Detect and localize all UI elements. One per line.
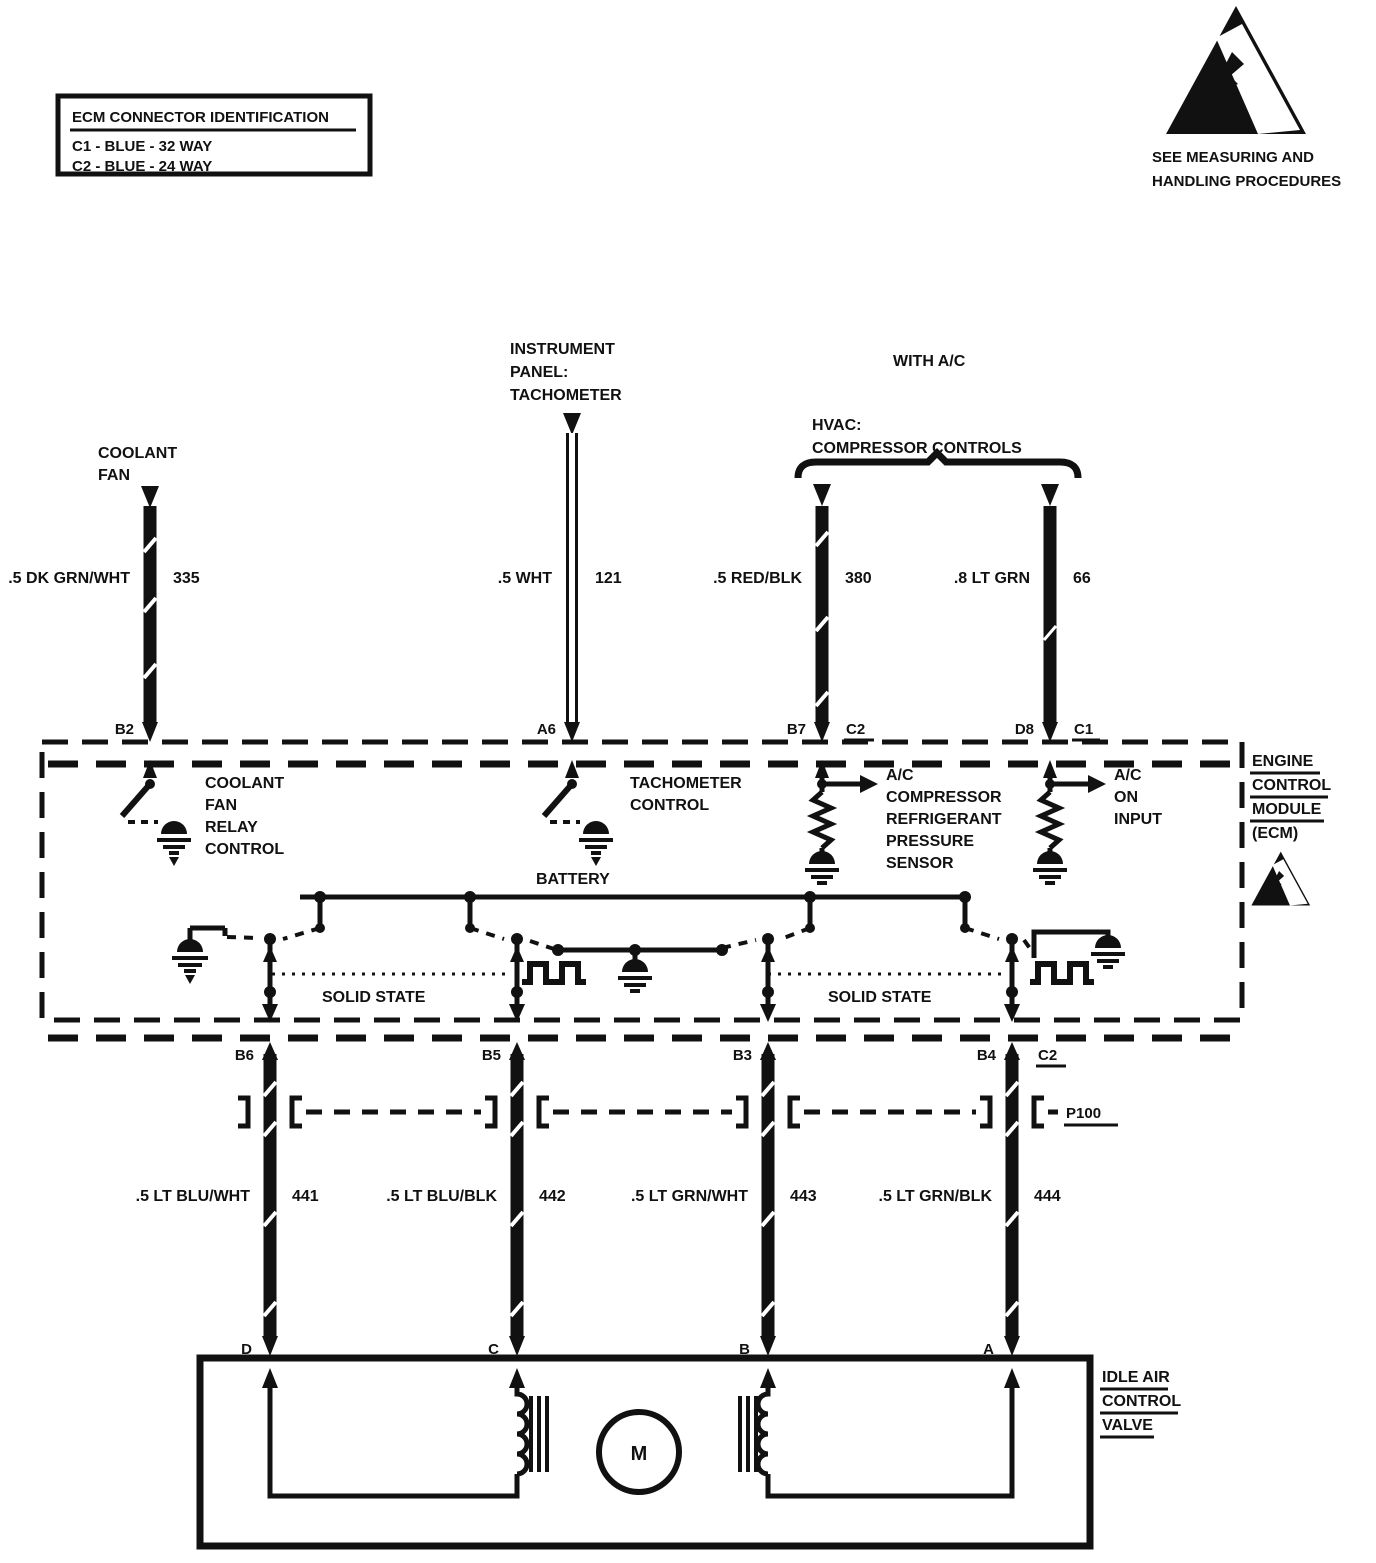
pin-label-d8: D8 (1015, 721, 1034, 738)
svg-text:INSTRUMENT: INSTRUMENT (510, 341, 615, 358)
wire-color-label: .5 LT GRN/WHT (631, 1188, 748, 1205)
wire-terminal (564, 722, 580, 742)
coolant-fan-label: COOLANT FAN (98, 445, 177, 508)
esd-warning: SEE MEASURING AND HANDLING PROCEDURES (1152, 6, 1341, 190)
battery-label: BATTERY (536, 871, 610, 888)
wire-color-label: .5 LT GRN/BLK (879, 1188, 993, 1205)
circuit-number: 441 (292, 1188, 319, 1205)
wire-color-label: .5 RED/BLK (713, 570, 802, 587)
arrow-right-icon (1088, 775, 1106, 793)
ground-icon (583, 821, 609, 834)
svg-text:CONTROL: CONTROL (630, 797, 709, 814)
circuit-number: 444 (1034, 1188, 1061, 1205)
wire-terminal (142, 722, 158, 742)
wire-color-label: .5 DK GRN/WHT (8, 570, 130, 587)
svg-text:FAN: FAN (98, 467, 130, 484)
arrow-up-icon (1043, 760, 1057, 778)
tachometer-control: TACHOMETER CONTROL (544, 760, 742, 866)
svg-text:CONTROL: CONTROL (1252, 777, 1331, 794)
ac-pressure-sensor-input: A/C COMPRESSOR REFRIGERANT PRESSURE SENS… (805, 760, 1002, 883)
circuit-number: 121 (595, 570, 622, 587)
solid-state-label-right: SOLID STATE (828, 989, 932, 1006)
arrow-down-icon (141, 486, 159, 508)
svg-text:INPUT: INPUT (1114, 811, 1162, 828)
wire-terminal (1042, 722, 1058, 742)
wire-color-label: .8 LT GRN (954, 570, 1030, 587)
p100-label: P100 (1066, 1105, 1101, 1122)
pin-label-b3: B3 (733, 1047, 752, 1064)
ground-icon (177, 939, 203, 952)
wire-441: .5 LT BLU/WHT 441 (136, 1042, 319, 1356)
ground-icon (161, 821, 187, 834)
battery-bus: BATTERY (300, 871, 971, 933)
iac-title-line2: CONTROL (1102, 1393, 1181, 1410)
driver-column-b5 (509, 933, 525, 1022)
connector-label-c2: C2 (846, 721, 865, 738)
svg-text:A/C: A/C (886, 767, 914, 784)
ground-icon (1037, 851, 1063, 864)
arrow-down-icon (813, 484, 831, 506)
circuit-number: 335 (173, 570, 200, 587)
pin-label-b7: B7 (787, 721, 806, 738)
ground-icon (622, 959, 648, 972)
wire-color-label: .5 LT BLU/BLK (386, 1188, 497, 1205)
instrument-panel-tachometer-label: INSTRUMENT PANEL: TACHOMETER (510, 341, 622, 435)
wire-coolant-fan-335: .5 DK GRN/WHT 335 B2 (8, 506, 200, 742)
iac-title-line3: VALVE (1102, 1417, 1153, 1434)
driver-column-b6 (262, 933, 278, 1022)
inline-connector-p100: P100 (238, 1098, 1118, 1126)
svg-text:CONTROL: CONTROL (205, 841, 284, 858)
svg-text:MODULE: MODULE (1252, 801, 1322, 818)
pin-label-b: B (739, 1341, 750, 1358)
wire-ac-pressure-380: .5 RED/BLK 380 B7 C2 (713, 506, 874, 742)
svg-text:COOLANT: COOLANT (98, 445, 177, 462)
ecm-title: ENGINE CONTROL MODULE (ECM) (1250, 753, 1331, 905)
resistor-icon (1041, 792, 1059, 848)
connector-label-c2-lower: C2 (1038, 1047, 1057, 1064)
solid-state-label-left: SOLID STATE (322, 989, 426, 1006)
driver-column-b3 (760, 933, 776, 1022)
circuit-number: 66 (1073, 570, 1091, 587)
legend-line-c2: C2 - BLUE - 24 WAY (72, 158, 212, 175)
pin-label-a6: A6 (537, 721, 556, 738)
esd-warning-icon-small (1251, 852, 1310, 906)
pin-label-d: D (241, 1341, 252, 1358)
iac-valve-box: IDLE AIR CONTROL VALVE (200, 1358, 1181, 1546)
svg-text:PANEL:: PANEL: (510, 364, 568, 381)
ground-icon (1095, 935, 1121, 948)
arrow-down-icon (1041, 484, 1059, 506)
svg-text:COOLANT: COOLANT (205, 775, 284, 792)
switch-lever (122, 784, 150, 816)
svg-text:(ECM): (ECM) (1252, 825, 1298, 842)
coolant-fan-relay-control: COOLANT FAN RELAY CONTROL (122, 760, 284, 866)
svg-text:FAN: FAN (205, 797, 237, 814)
svg-text:COMPRESSOR: COMPRESSOR (886, 789, 1002, 806)
pin-label-b6: B6 (235, 1047, 254, 1064)
ac-on-input: A/C ON INPUT (1033, 760, 1162, 883)
svg-text:ON: ON (1114, 789, 1138, 806)
wire-ac-on-66: .8 LT GRN 66 D8 C1 (954, 506, 1100, 742)
motor-label: M (631, 1443, 648, 1465)
with-ac-label: WITH A/C (893, 353, 966, 370)
wire-444: .5 LT GRN/BLK 444 (879, 1042, 1061, 1356)
wiring-diagram-page: ECM CONNECTOR IDENTIFICATION C1 - BLUE -… (0, 0, 1376, 1558)
arrow-right-icon (860, 775, 878, 793)
svg-text:TACHOMETER: TACHOMETER (630, 775, 742, 792)
hvac-compressor-controls-label: HVAC: COMPRESSOR CONTROLS (798, 417, 1078, 506)
pin-label-a: A (983, 1341, 994, 1358)
wire-tachometer-121: .5 WHT 121 A6 (498, 433, 622, 742)
wire-terminal (814, 722, 830, 742)
driver-column-b4 (1004, 933, 1020, 1022)
svg-text:A/C: A/C (1114, 767, 1142, 784)
esd-note-line2: HANDLING PROCEDURES (1152, 173, 1341, 190)
coil-icon (758, 1380, 768, 1474)
pin-label-b2: B2 (115, 721, 134, 738)
coil-icon (517, 1380, 527, 1474)
arrow-down-icon (563, 413, 581, 435)
iac-internals: M (262, 1368, 1020, 1496)
circuit-number: 443 (790, 1188, 817, 1205)
connector-label-c1: C1 (1074, 721, 1093, 738)
ground-icon (809, 851, 835, 864)
switch-lever (544, 784, 572, 816)
esd-note-line1: SEE MEASURING AND (1152, 149, 1314, 166)
svg-text:HVAC:: HVAC: (812, 417, 861, 434)
iac-title-line1: IDLE AIR (1102, 1369, 1170, 1386)
pulse-signal-right (1030, 932, 1125, 982)
pin-label-c: C (488, 1341, 499, 1358)
circuit-number: 380 (845, 570, 872, 587)
pin-label-b4: B4 (977, 1047, 997, 1064)
wire-color-label: .5 LT BLU/WHT (136, 1188, 251, 1205)
svg-text:COMPRESSOR CONTROLS: COMPRESSOR CONTROLS (812, 440, 1022, 457)
svg-text:TACHOMETER: TACHOMETER (510, 387, 622, 404)
pulse-signal-left (522, 964, 586, 982)
resistor-icon (813, 792, 831, 848)
legend-line-c1: C1 - BLUE - 32 WAY (72, 138, 212, 155)
wire-442: .5 LT BLU/BLK 442 (386, 1042, 566, 1356)
svg-text:REFRIGERANT: REFRIGERANT (886, 811, 1002, 828)
svg-text:ENGINE: ENGINE (1252, 753, 1314, 770)
left-ground-hook (172, 928, 225, 984)
legend-title: ECM CONNECTOR IDENTIFICATION (72, 109, 329, 126)
svg-text:SENSOR: SENSOR (886, 855, 954, 872)
svg-text:RELAY: RELAY (205, 819, 258, 836)
circuit-number: 442 (539, 1188, 566, 1205)
wire-443: .5 LT GRN/WHT 443 (631, 1042, 817, 1356)
pin-label-b5: B5 (482, 1047, 501, 1064)
wire-color-label: .5 WHT (498, 570, 552, 587)
ecm-connector-legend: ECM CONNECTOR IDENTIFICATION C1 - BLUE -… (58, 96, 370, 175)
wiring-diagram: ECM CONNECTOR IDENTIFICATION C1 - BLUE -… (0, 0, 1376, 1558)
svg-text:PRESSURE: PRESSURE (886, 833, 974, 850)
